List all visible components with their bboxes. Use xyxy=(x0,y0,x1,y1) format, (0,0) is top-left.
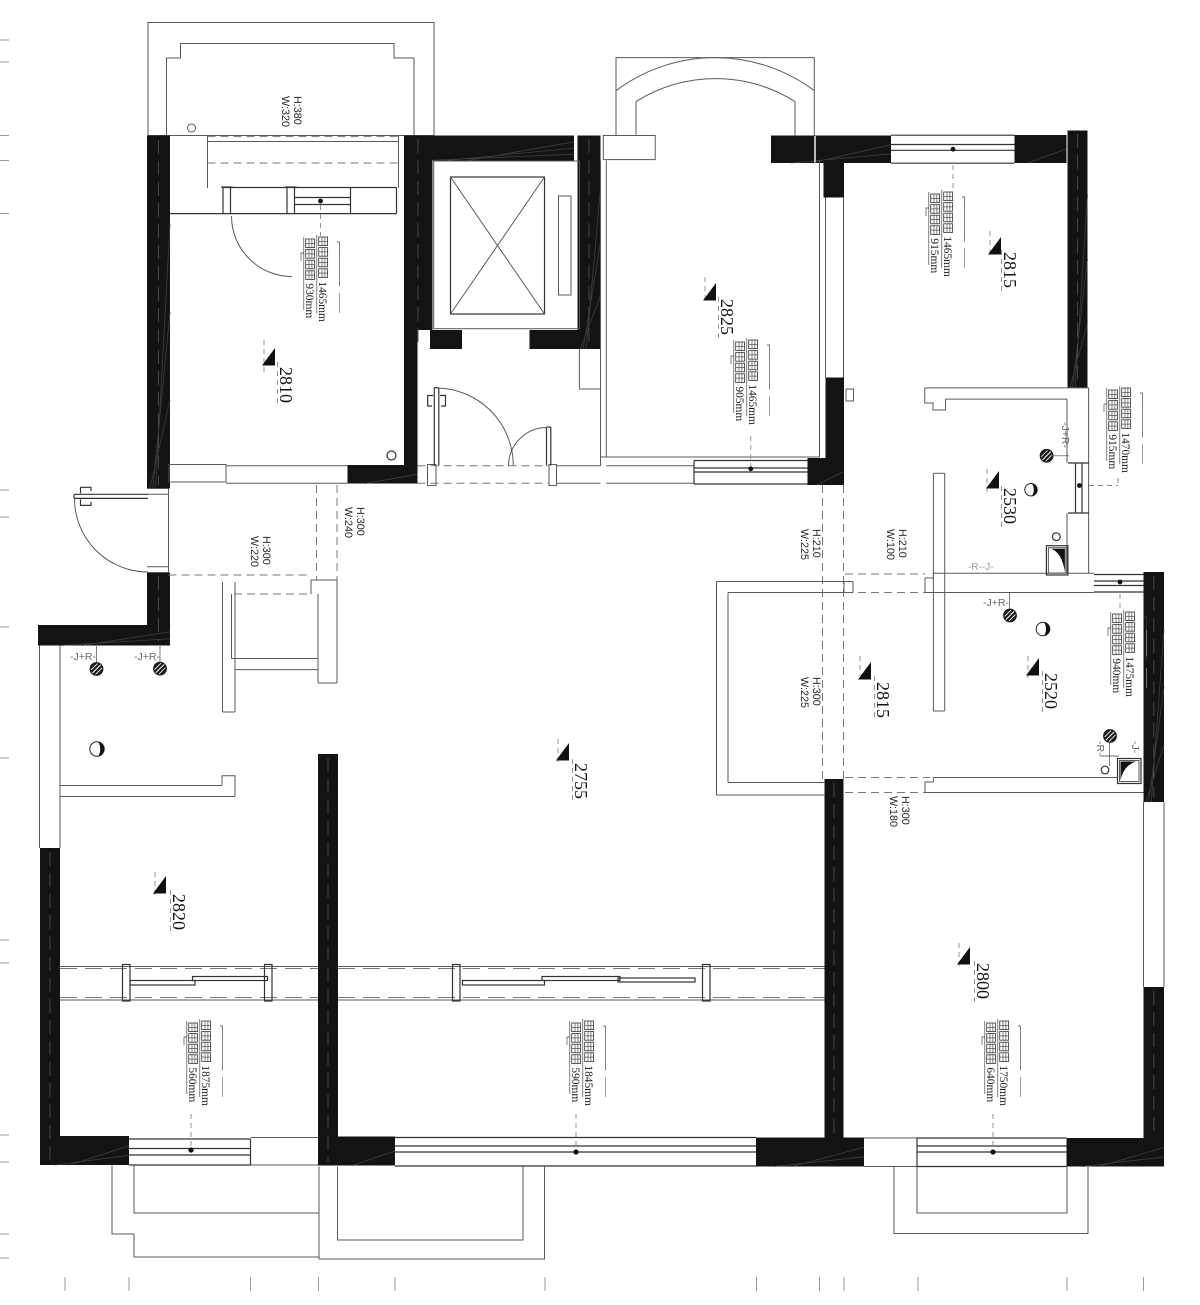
svg-text:H:300: H:300 xyxy=(810,677,822,706)
svg-text:2820: 2820 xyxy=(169,894,189,930)
svg-text:2825: 2825 xyxy=(717,299,737,335)
svg-text:W:220: W:220 xyxy=(248,536,260,567)
svg-text:1750mm: 1750mm xyxy=(997,1065,1009,1106)
svg-text:H:300: H:300 xyxy=(260,536,272,565)
svg-text:H:210: H:210 xyxy=(896,529,908,558)
svg-text:W:180: W:180 xyxy=(887,796,899,827)
svg-text:1465mm: 1465mm xyxy=(746,384,758,425)
svg-text:W:100: W:100 xyxy=(884,529,896,560)
svg-text:W:240: W:240 xyxy=(342,507,354,538)
svg-text:2810: 2810 xyxy=(276,367,296,403)
svg-text:1875mm: 1875mm xyxy=(199,1065,211,1106)
svg-text:-J-: -J- xyxy=(1129,741,1141,754)
svg-text:2755: 2755 xyxy=(571,763,591,799)
svg-text:1475mm: 1475mm xyxy=(1123,656,1135,697)
svg-text:2815: 2815 xyxy=(873,682,893,718)
svg-text:940mm: 940mm xyxy=(1110,658,1122,693)
svg-text:2800: 2800 xyxy=(973,963,993,999)
svg-text:-J+R-: -J+R- xyxy=(134,651,160,663)
svg-text:915mm: 915mm xyxy=(1106,434,1118,469)
svg-text:W:320: W:320 xyxy=(279,96,291,127)
svg-text:-J+R-: -J+R- xyxy=(983,597,1009,609)
svg-text:2520: 2520 xyxy=(1041,673,1061,709)
svg-text:H:380: H:380 xyxy=(291,96,303,125)
svg-text:H:210: H:210 xyxy=(810,529,822,558)
svg-text:H:300: H:300 xyxy=(354,507,366,536)
svg-text:H:300: H:300 xyxy=(899,796,911,825)
svg-text:1845mm: 1845mm xyxy=(582,1065,594,1106)
svg-text:640mm: 640mm xyxy=(984,1067,996,1102)
svg-text:930mm: 930mm xyxy=(303,283,315,318)
svg-text:2815: 2815 xyxy=(1000,252,1020,288)
svg-text:-R-: -R- xyxy=(1094,741,1106,756)
svg-text:W:225: W:225 xyxy=(798,529,810,560)
svg-text:-R--J-: -R--J- xyxy=(968,562,994,573)
svg-text:-J+R-: -J+R- xyxy=(1059,422,1071,448)
svg-text:590mm: 590mm xyxy=(569,1067,581,1102)
svg-text:1470mm: 1470mm xyxy=(1119,432,1131,473)
svg-text:560mm: 560mm xyxy=(186,1067,198,1102)
svg-text:915mm: 915mm xyxy=(928,238,940,273)
svg-text:905mm: 905mm xyxy=(733,386,745,421)
svg-text:1465mm: 1465mm xyxy=(316,281,328,322)
svg-text:2530: 2530 xyxy=(1000,488,1020,524)
svg-text:1465mm: 1465mm xyxy=(941,236,953,277)
svg-text:W:225: W:225 xyxy=(798,677,810,708)
svg-text:-J+R-: -J+R- xyxy=(70,651,96,663)
